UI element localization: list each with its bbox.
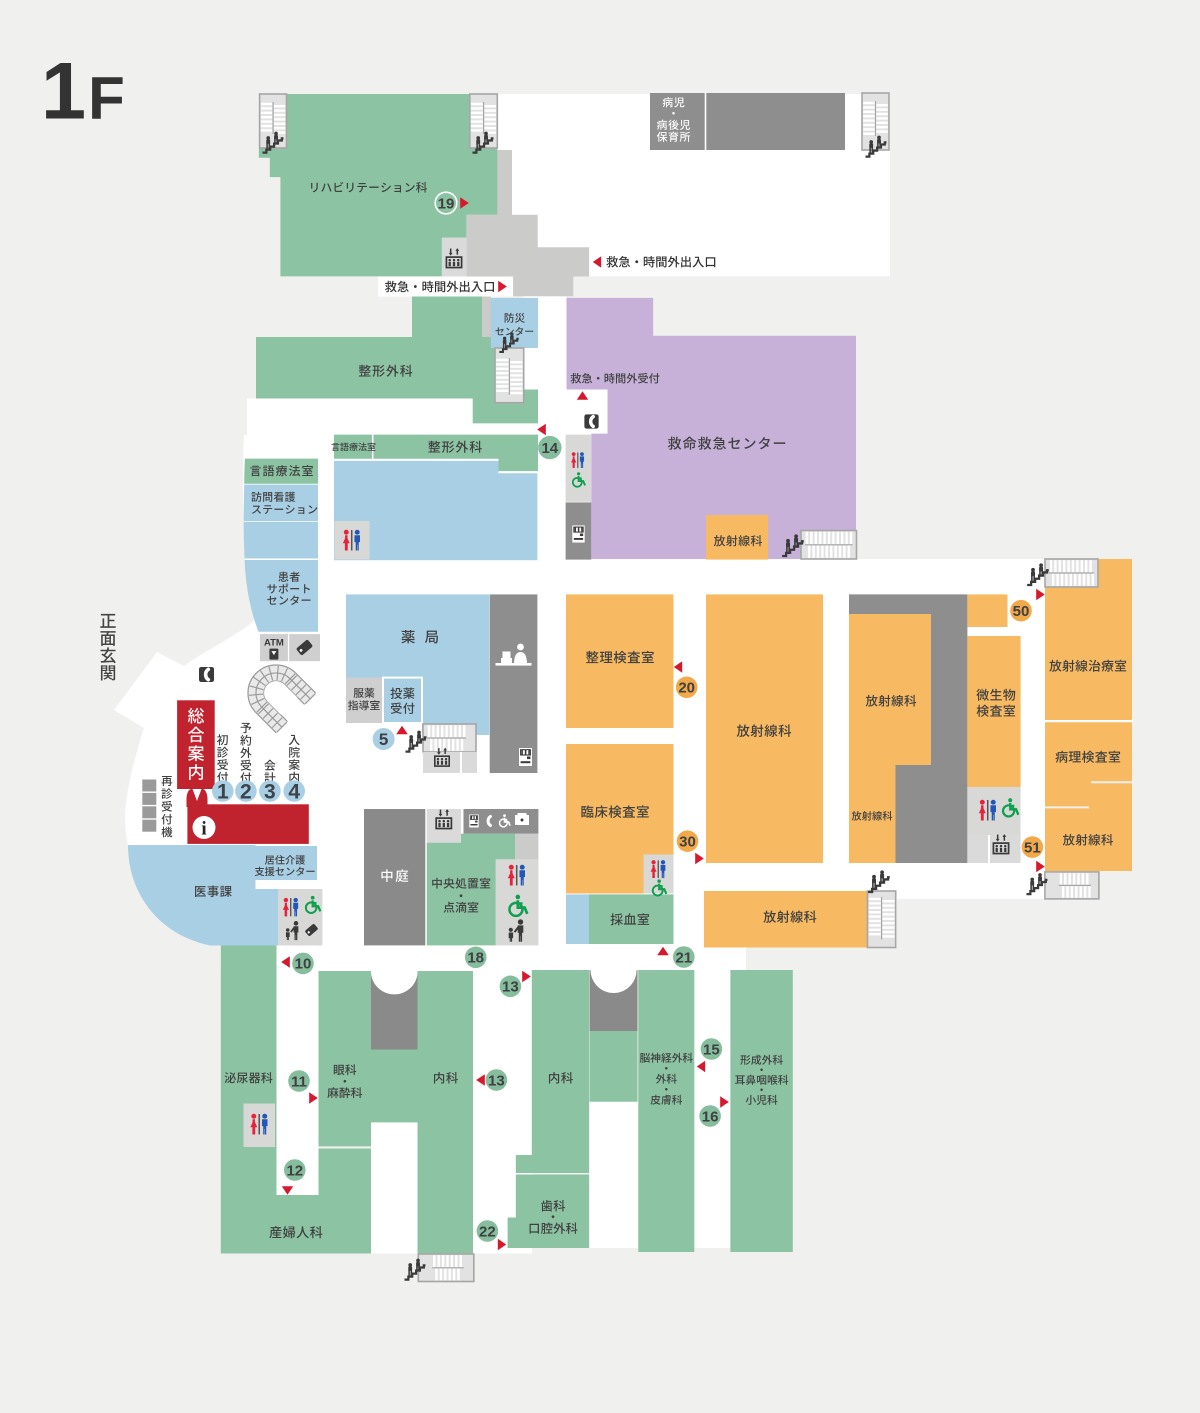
svg-text:i: i <box>201 819 206 840</box>
svg-text:5: 5 <box>379 730 388 749</box>
svg-text:4: 4 <box>288 781 300 804</box>
svg-text:21: 21 <box>675 949 692 966</box>
svg-text:13: 13 <box>502 979 519 996</box>
svg-text:12: 12 <box>286 1162 303 1179</box>
svg-text:10: 10 <box>295 956 312 973</box>
svg-text:15: 15 <box>703 1041 720 1058</box>
svg-text:19: 19 <box>438 195 455 212</box>
svg-text:30: 30 <box>679 834 696 851</box>
svg-text:13: 13 <box>488 1072 505 1089</box>
svg-text:1: 1 <box>217 781 229 804</box>
svg-text:ATM: ATM <box>264 638 284 649</box>
svg-text:50: 50 <box>1013 603 1030 620</box>
svg-text:3: 3 <box>264 781 276 804</box>
svg-text:18: 18 <box>467 950 484 967</box>
svg-text:22: 22 <box>479 1223 496 1240</box>
svg-text:16: 16 <box>702 1108 719 1125</box>
svg-text:20: 20 <box>678 680 695 697</box>
svg-text:14: 14 <box>541 440 558 457</box>
svg-text:11: 11 <box>291 1073 307 1090</box>
svg-text:51: 51 <box>1024 839 1041 856</box>
svg-text:2: 2 <box>240 781 252 804</box>
